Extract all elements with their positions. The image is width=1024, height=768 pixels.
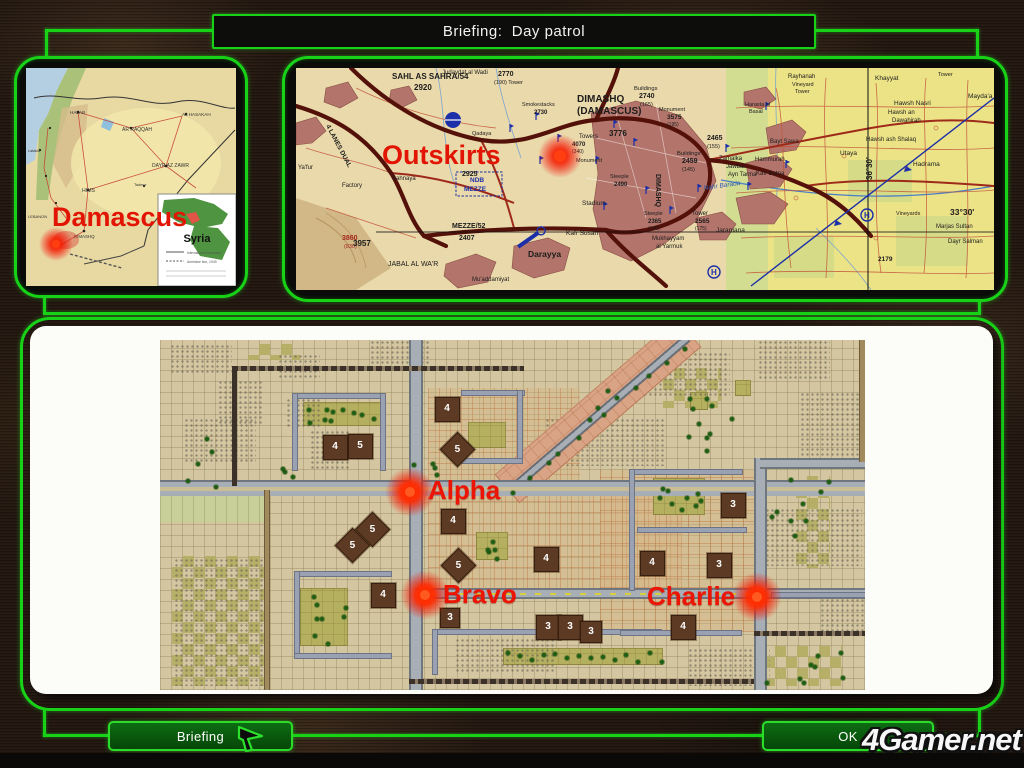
tree-dot xyxy=(798,677,802,681)
terrain-olive xyxy=(735,380,751,396)
compound-wall xyxy=(295,654,391,658)
building-level-number: 4 xyxy=(380,590,386,600)
map-label: 2730 xyxy=(534,110,548,116)
briefing-title-text: Briefing: Day patrol xyxy=(443,23,585,40)
svg-text:Armistice line, 1949: Armistice line, 1949 xyxy=(187,260,217,264)
tree-dot xyxy=(730,417,734,421)
building-level-number: 5 xyxy=(369,524,375,534)
map-label: HALAB xyxy=(70,110,85,115)
building: 4 xyxy=(435,397,460,422)
map-label: 2770 xyxy=(498,71,514,78)
road xyxy=(264,490,270,690)
building-level-number: 4 xyxy=(332,442,338,452)
tree-dot xyxy=(680,508,684,512)
map-label: MEZZE/52 xyxy=(452,223,486,230)
map-label: Judaydat al Wadi xyxy=(442,70,488,76)
map-label: (DAMASCUS) xyxy=(577,106,641,117)
tree-dot xyxy=(518,654,522,658)
compound-wall xyxy=(772,593,865,597)
tree-dot xyxy=(809,663,813,667)
map-label: Vineyard xyxy=(792,82,814,88)
title-drop-left xyxy=(45,29,48,58)
tree-dot xyxy=(666,489,670,493)
terrain-olive xyxy=(468,422,506,448)
terrain-rough xyxy=(760,508,862,566)
tree-dot xyxy=(588,418,592,422)
compound-wall xyxy=(630,470,634,590)
compound-wall xyxy=(638,528,746,532)
building: 4 xyxy=(441,509,466,534)
tree-dot xyxy=(697,422,701,426)
tree-dot xyxy=(214,485,218,489)
map-label: (195) xyxy=(667,122,679,128)
map-label: Tower xyxy=(938,72,953,78)
compound-wall xyxy=(518,391,522,463)
terrain-rough xyxy=(800,392,864,468)
tactical-map: 454555454343334334AlphaBravoCharlie xyxy=(160,340,865,690)
building-level-number: 3 xyxy=(730,500,736,510)
map-label: Stadium xyxy=(582,200,606,207)
title-drop-right xyxy=(976,29,979,58)
tree-dot xyxy=(577,436,581,440)
title-connector-left xyxy=(45,29,214,32)
map-label: LEBANON xyxy=(28,214,47,219)
map-label: (175) xyxy=(695,226,707,232)
tree-dot xyxy=(342,615,346,619)
tree-dot xyxy=(705,397,709,401)
map-label: DIMASHQ xyxy=(654,174,661,208)
tree-dot xyxy=(661,487,665,491)
tree-dot xyxy=(596,406,600,410)
terrain-lgreen xyxy=(160,496,270,522)
building: 3 xyxy=(558,615,583,640)
tree-dot xyxy=(606,389,610,393)
map-label: 3957 xyxy=(353,239,371,248)
tree-dot xyxy=(801,502,805,506)
map-label: al Yarmuk xyxy=(656,244,683,250)
building-level-number: 3 xyxy=(545,622,551,632)
map-label: (155) xyxy=(707,144,720,150)
tree-dot xyxy=(291,475,295,479)
map-label: 2407 xyxy=(459,235,475,242)
map-label: (165) xyxy=(640,102,653,108)
tree-dot xyxy=(495,557,499,561)
tree-dot xyxy=(613,658,617,662)
tree-dot xyxy=(511,491,515,495)
terrain-rough xyxy=(184,418,256,464)
tree-dot xyxy=(665,361,669,365)
tree-dot xyxy=(530,658,534,662)
tree-dot xyxy=(636,660,640,664)
building-level-number: 4 xyxy=(444,404,450,414)
map-label: H xyxy=(711,268,717,277)
map-label: HIMS xyxy=(82,188,96,194)
tree-dot xyxy=(658,496,662,500)
tree-dot xyxy=(696,492,700,496)
tree-dot xyxy=(315,617,319,621)
building-level-number: 3 xyxy=(567,622,573,632)
terrain-rough xyxy=(820,593,864,635)
tree-dot xyxy=(683,347,687,351)
map-label: 2179 xyxy=(878,256,893,263)
tree-dot xyxy=(624,653,628,657)
terrain-rough xyxy=(174,558,266,686)
building-level-number: 4 xyxy=(543,554,549,564)
map-label: Basal xyxy=(749,109,763,115)
map-label: JABAL AL WA'R xyxy=(388,261,438,268)
compound-wall xyxy=(630,470,742,474)
building-level-number: 4 xyxy=(680,622,686,632)
road xyxy=(409,679,754,684)
tree-dot xyxy=(186,479,190,483)
compound-wall xyxy=(295,572,391,576)
mid-connector xyxy=(43,312,981,315)
building-level-number: 5 xyxy=(455,560,461,570)
tree-dot xyxy=(647,374,651,378)
building: 3 xyxy=(707,553,732,578)
ok-button-label: OK xyxy=(838,729,858,744)
map-label: Jawbar xyxy=(726,164,745,170)
terrain-olive2 xyxy=(764,646,842,686)
building-level-number: 5 xyxy=(349,540,355,550)
map-label: Jaramana xyxy=(716,227,745,234)
map-label: Utaya xyxy=(840,150,857,157)
tree-dot xyxy=(699,499,703,503)
damascus-area-map: SAHL AS SAHRA/542920Judaydat al Wadi2770… xyxy=(296,68,994,290)
map-label: 3776 xyxy=(609,129,627,138)
building: 4 xyxy=(534,547,559,572)
tree-dot xyxy=(542,653,546,657)
tree-dot xyxy=(789,519,793,523)
map-label: Tower xyxy=(692,211,708,217)
building: 3 xyxy=(721,493,746,518)
map-label: Kafr Susah xyxy=(566,230,599,237)
mouse-cursor-icon xyxy=(236,724,266,754)
building: 4 xyxy=(323,435,348,460)
tree-dot xyxy=(775,510,779,514)
compound-wall xyxy=(381,394,385,470)
tree-dot xyxy=(210,450,214,454)
syria-overview-panel: HALABAR RAQQAHAL HASAKAHDAYR AZ ZAWRHIMS… xyxy=(14,56,248,298)
tree-dot xyxy=(313,634,317,638)
tree-dot xyxy=(307,408,311,412)
map-label: Zamalka xyxy=(719,156,743,162)
building-level-number: 5 xyxy=(454,444,460,454)
map-label: Darayya xyxy=(528,249,561,259)
tree-dot xyxy=(765,681,769,685)
tree-dot xyxy=(312,595,316,599)
terrain-olive xyxy=(476,532,508,560)
map-label: 2459 xyxy=(682,158,698,165)
damascus-area-panel: SAHL AS SAHRA/542920Judaydat al Wadi2770… xyxy=(282,56,1008,302)
tree-dot xyxy=(813,665,817,669)
tree-dot xyxy=(688,397,692,401)
tree-dot xyxy=(341,408,345,412)
tree-dot xyxy=(344,606,348,610)
map-label: 3575 xyxy=(667,114,682,121)
terrain-olive xyxy=(300,588,348,646)
map-label: Hawsh an xyxy=(888,110,915,116)
title-connector-right xyxy=(810,29,979,32)
map-label: (190) Tower xyxy=(494,80,523,86)
svg-text:Damascus: Damascus xyxy=(52,202,187,232)
tree-dot xyxy=(660,660,664,664)
map-label: NDB xyxy=(470,177,484,184)
briefing-sheet: 454555454343334334AlphaBravoCharlie xyxy=(30,326,993,694)
compound-wall xyxy=(293,394,385,398)
map-label: Bayt Sawa xyxy=(770,139,799,145)
map-label: 2565 xyxy=(695,218,710,225)
map-label: 2490 xyxy=(614,182,628,188)
tree-dot xyxy=(565,656,569,660)
tree-dot xyxy=(493,548,497,552)
map-label: Kafr Batna xyxy=(756,171,785,177)
tree-dot xyxy=(491,540,495,544)
tree-dot xyxy=(802,681,806,685)
objective-label: Bravo xyxy=(443,579,517,610)
briefing-button-label: Briefing xyxy=(177,729,224,744)
tree-dot xyxy=(819,490,823,494)
tree-dot xyxy=(804,519,808,523)
svg-text:Syria: Syria xyxy=(184,233,212,245)
map-label: 36°30' xyxy=(865,157,874,180)
svg-text:Outskirts: Outskirts xyxy=(382,140,501,170)
tree-dot xyxy=(694,504,698,508)
tree-dot xyxy=(320,617,324,621)
tree-dot xyxy=(547,461,551,465)
compound-wall xyxy=(433,630,437,674)
mid-stub-left xyxy=(43,296,46,314)
compound-wall xyxy=(293,394,297,470)
tree-dot xyxy=(705,449,709,453)
tree-dot xyxy=(308,421,312,425)
building: 3 xyxy=(580,621,602,643)
tree-dot xyxy=(670,502,674,506)
map-label: Buildings xyxy=(677,151,701,157)
tree-dot xyxy=(841,676,845,680)
road xyxy=(232,366,524,371)
map-label: Monument xyxy=(659,107,685,113)
map-label: (145) xyxy=(682,167,695,173)
tree-dot xyxy=(372,417,376,421)
map-label: Dawahirah xyxy=(892,118,921,124)
map-label: AR RAQQAH xyxy=(122,127,152,133)
tree-dot xyxy=(196,462,200,466)
tree-dot xyxy=(601,655,605,659)
tree-dot xyxy=(577,654,581,658)
map-label: Hadrama xyxy=(913,161,940,168)
building-level-number: 3 xyxy=(588,627,594,637)
terrain-rough xyxy=(455,638,555,672)
map-label: Mayda'a xyxy=(968,93,993,100)
road xyxy=(760,458,865,469)
map-label: Smokestacks xyxy=(522,102,555,108)
building-level-number: 3 xyxy=(716,560,722,570)
svg-text:International boundary: International boundary xyxy=(187,251,221,255)
terrain-rough xyxy=(758,340,830,380)
tree-dot xyxy=(602,413,606,417)
map-label: DIMASHQ xyxy=(577,94,624,105)
map-label: Towers xyxy=(579,134,598,140)
map-label: Buildings xyxy=(634,86,658,92)
map-label: Khayyat xyxy=(875,75,899,82)
map-label: Ayn Tarma xyxy=(728,172,757,178)
map-label: Hammurah xyxy=(755,157,785,163)
tree-dot xyxy=(205,437,209,441)
compound-wall xyxy=(295,572,299,658)
tree-dot xyxy=(708,432,712,436)
tree-dot xyxy=(528,476,532,480)
map-label: Steeple xyxy=(610,174,629,180)
objective-burst-marker xyxy=(732,572,782,622)
tree-dot xyxy=(687,435,691,439)
tree-dot xyxy=(553,652,557,656)
building-level-number: 4 xyxy=(649,558,655,568)
map-label: (140) xyxy=(648,226,660,232)
tree-dot xyxy=(789,478,793,482)
map-label: Mu'addamiyat xyxy=(472,277,509,283)
briefing-title-bar: Briefing: Day patrol xyxy=(212,14,816,49)
tree-dot xyxy=(816,654,820,658)
tree-dot xyxy=(360,413,364,417)
tree-dot xyxy=(315,603,319,607)
map-label: 33°30' xyxy=(950,207,974,217)
tree-dot xyxy=(326,642,330,646)
map-label: 2740 xyxy=(639,93,655,100)
map-label: Harasta al xyxy=(745,102,770,108)
map-label: 2465 xyxy=(707,135,723,142)
map-label: Steeple xyxy=(644,211,663,217)
compound-wall xyxy=(462,391,524,395)
road xyxy=(754,631,865,636)
map-label: AL HASAKAH xyxy=(182,112,211,117)
road xyxy=(232,366,237,486)
tree-dot xyxy=(331,410,335,414)
tree-dot xyxy=(325,408,329,412)
mid-stub-right xyxy=(978,300,981,314)
building: 4 xyxy=(671,615,696,640)
map-label: Dayr Salman xyxy=(948,239,983,245)
tree-dot xyxy=(323,418,327,422)
objective-label: Alpha xyxy=(428,475,500,506)
tree-dot xyxy=(691,407,695,411)
objective-label: Charlie xyxy=(647,581,735,612)
tree-dot xyxy=(433,466,437,470)
map-label: MEZZE xyxy=(464,186,487,193)
map-label: Vineyards xyxy=(896,211,921,217)
tree-dot xyxy=(710,404,714,408)
tree-dot xyxy=(589,656,593,660)
tree-dot xyxy=(352,411,356,415)
tree-dot xyxy=(839,651,843,655)
map-label: Mukhayyam xyxy=(652,236,684,242)
terrain-rough xyxy=(286,398,322,428)
tree-dot xyxy=(556,452,560,456)
building-level-number: 4 xyxy=(450,516,456,526)
tree-dot xyxy=(281,467,285,471)
map-label: Qadaya xyxy=(472,131,492,137)
map-label: Hawsh Nasri xyxy=(894,100,931,107)
map-label: 2365 xyxy=(648,219,662,225)
map-label: Rayhanah xyxy=(788,74,815,80)
terrain-rough xyxy=(170,344,232,374)
map-label: H xyxy=(864,211,870,220)
building-level-number: 3 xyxy=(447,613,453,623)
watermark: 4Gamer.net xyxy=(862,722,1021,758)
map-label: Tadmur xyxy=(134,183,147,187)
building: 5 xyxy=(348,434,373,459)
tree-dot xyxy=(793,534,797,538)
building: 4 xyxy=(371,583,396,608)
map-label: Marjas Sultan xyxy=(936,224,973,230)
tree-dot xyxy=(486,548,490,552)
tree-dot xyxy=(329,419,333,423)
syria-overview-map: HALABAR RAQQAHAL HASAKAHDAYR AZ ZAWRHIMS… xyxy=(26,68,236,286)
map-label: Ya'fur xyxy=(298,165,313,171)
map-label: Factory xyxy=(342,183,362,189)
map-label: Tower xyxy=(795,89,810,95)
building-level-number: 5 xyxy=(357,441,363,451)
map-label: Hawsh ash Shalaq xyxy=(866,137,916,143)
tree-dot xyxy=(634,386,638,390)
compound-wall xyxy=(462,459,522,463)
road xyxy=(859,340,865,462)
tree-dot xyxy=(705,436,709,440)
map-label: DAYR AZ ZAWR xyxy=(152,163,189,169)
tree-dot xyxy=(770,515,774,519)
bottom-stub-left xyxy=(43,710,46,737)
tree-dot xyxy=(827,480,831,484)
tree-dot xyxy=(506,651,510,655)
tree-dot xyxy=(648,651,652,655)
tree-dot xyxy=(685,496,689,500)
building: 4 xyxy=(640,551,665,576)
tree-dot xyxy=(615,396,619,400)
map-label: 2920 xyxy=(414,83,432,92)
map-label: Latakia xyxy=(28,149,41,153)
map-label: Sahnaya xyxy=(392,176,416,182)
